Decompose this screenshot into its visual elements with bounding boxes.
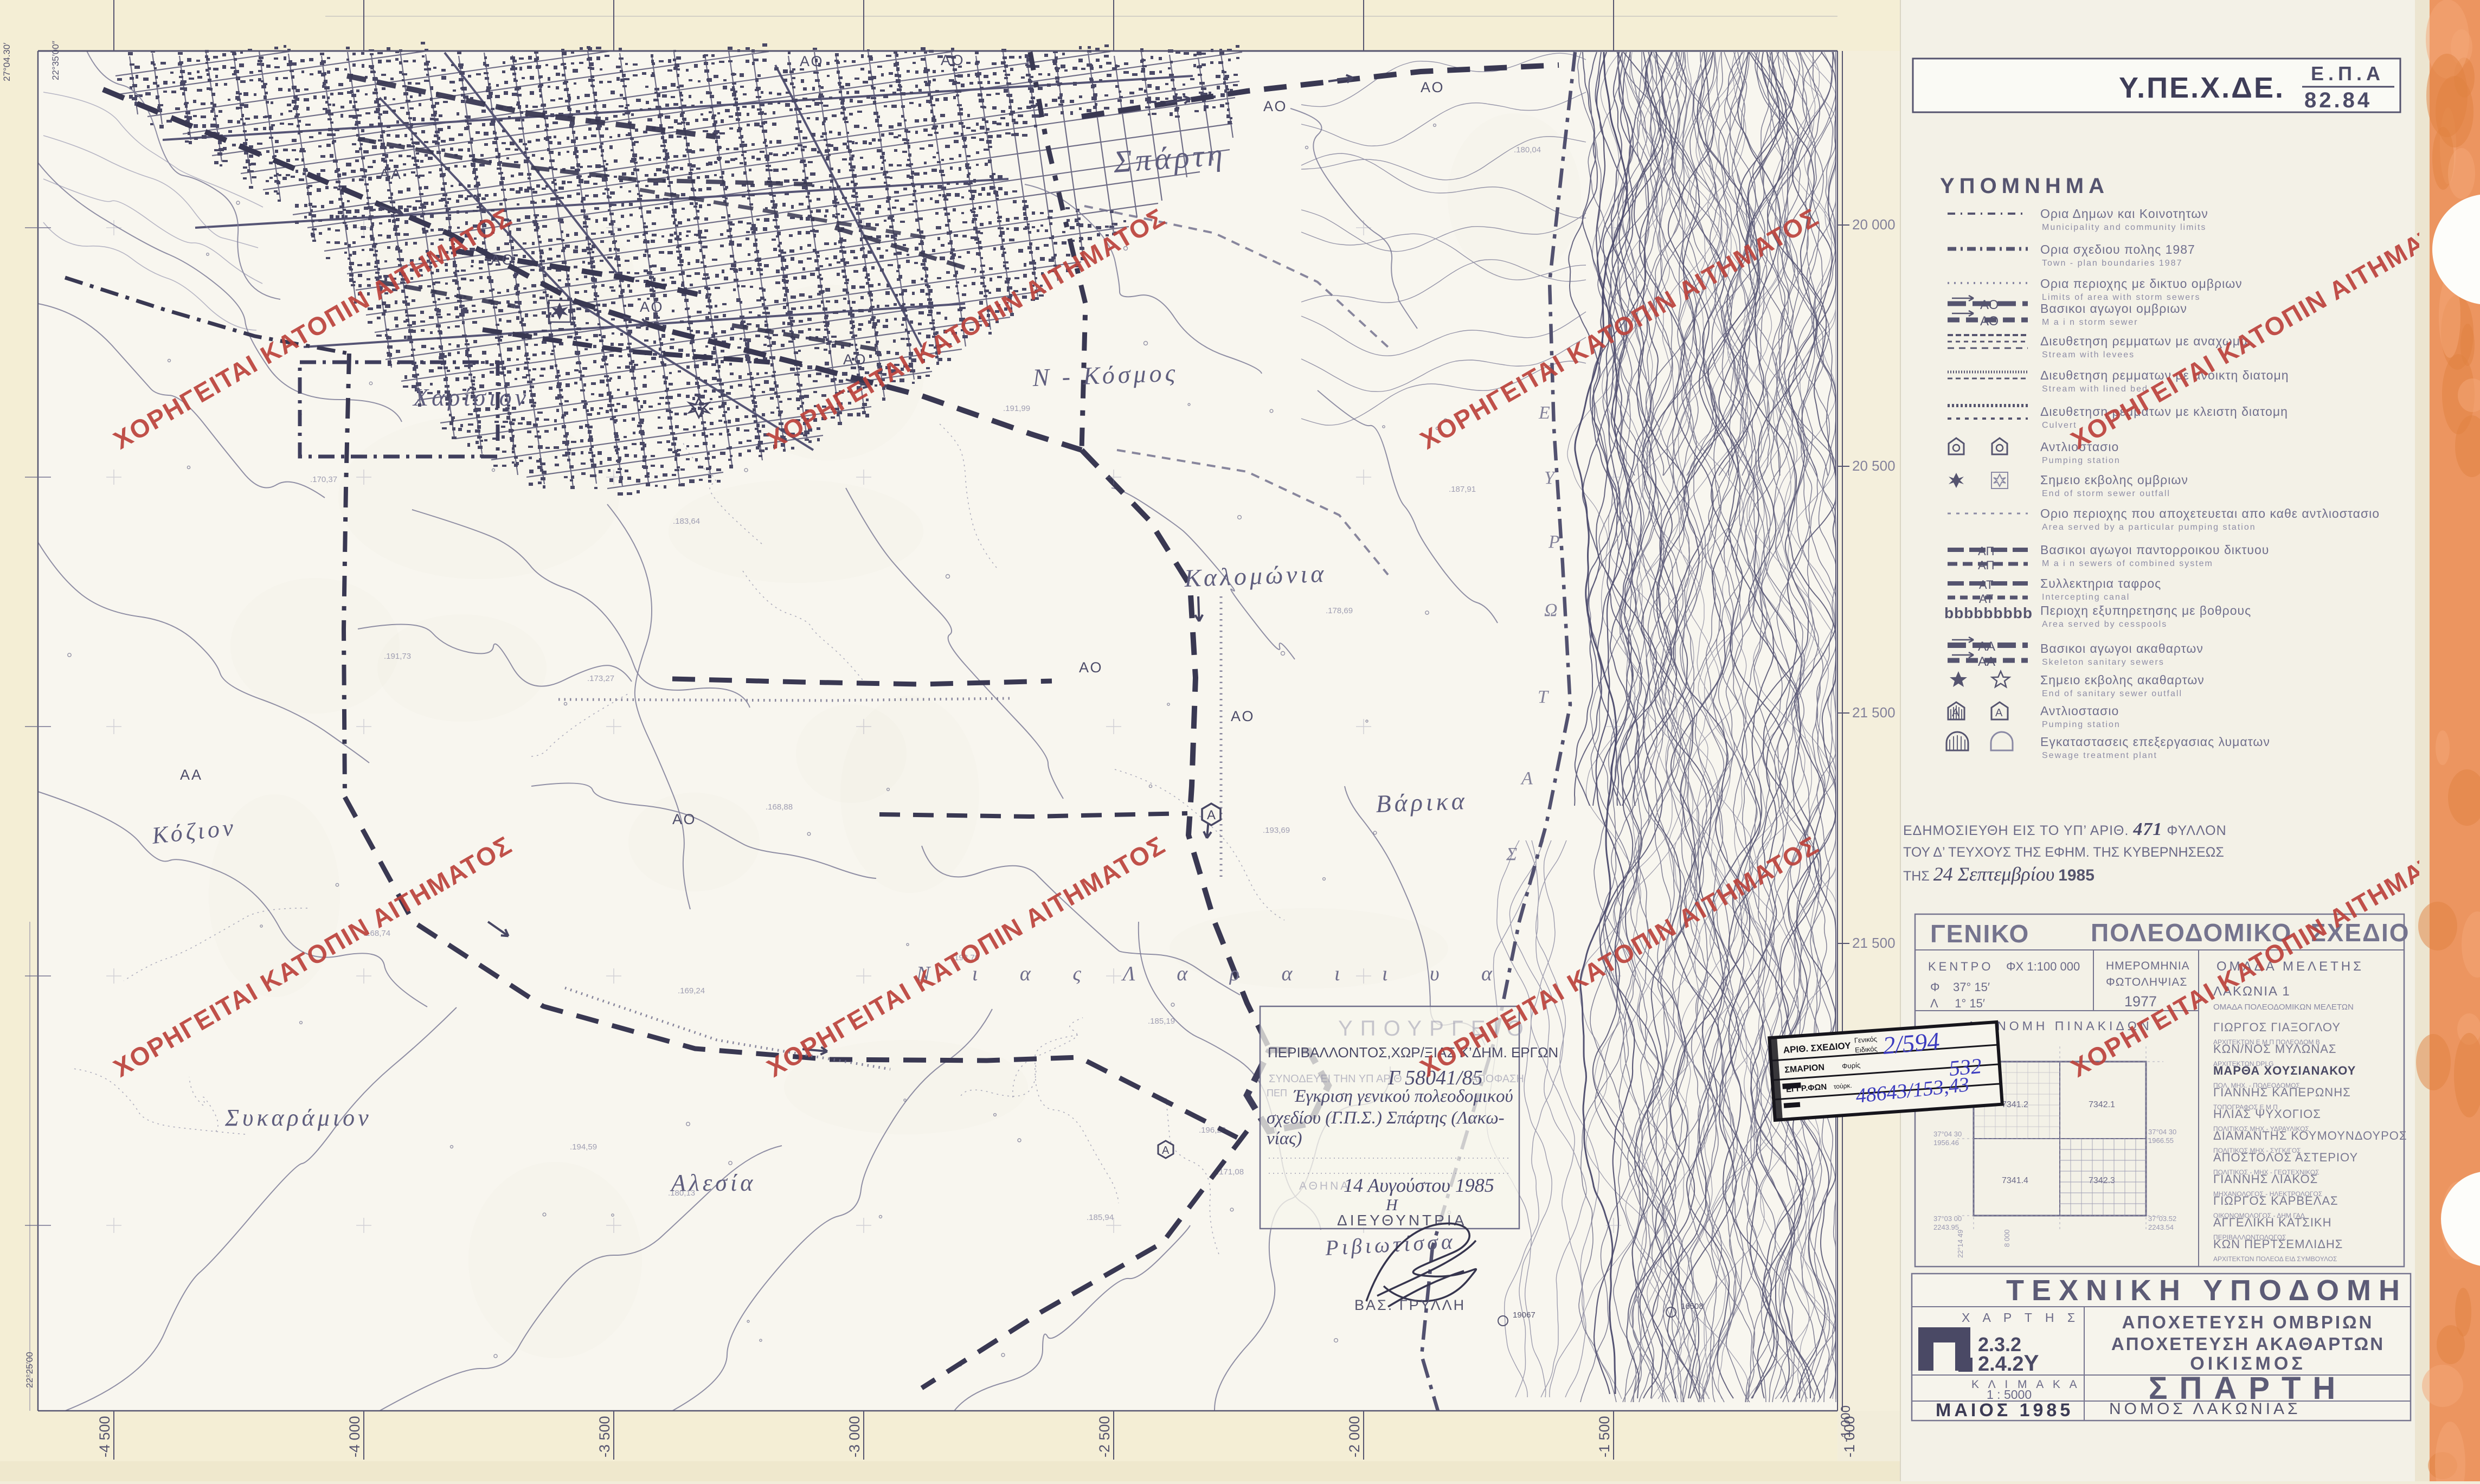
svg-text:bbbbbbbbb: bbbbbbbbb: [1944, 605, 2033, 621]
svg-text:Stream with levees: Stream with levees: [2042, 350, 2135, 359]
svg-text:Φ 37° 15′: Φ 37° 15′: [1930, 980, 1990, 994]
svg-text:σχεδίου (Γ.Π.Σ.) Σπάρτης (Λακω: σχεδίου (Γ.Π.Σ.) Σπάρτης (Λακω-: [1267, 1108, 1505, 1128]
svg-text:ΗΛΙΑΣ ΨΥΧΟΓΙΟΣ: ΗΛΙΑΣ ΨΥΧΟΓΙΟΣ: [2213, 1107, 2321, 1121]
svg-text:Skeleton sanitary sewers: Skeleton sanitary sewers: [2042, 658, 2164, 667]
svg-text:Σ: Σ: [1506, 844, 1517, 864]
svg-text:16508: 16508: [1681, 1302, 1704, 1311]
svg-text:ΑΠΟΣΤΟΛΟΣ ΑΣΤΕΡΙΟΥ: ΑΠΟΣΤΟΛΟΣ ΑΣΤΕΡΙΟΥ: [2213, 1151, 2358, 1164]
svg-text:ΑΟ: ΑΟ: [1980, 314, 1999, 329]
svg-text:ΑΠΟΧΕΤΕΥΣΗ ΑΚΑΘΑΡΤΩΝ: ΑΠΟΧΕΤΕΥΣΗ ΑΚΑΘΑΡΤΩΝ: [2111, 1334, 2385, 1354]
svg-text:Ν ι α ς Λ α ρ α ι ι υ α: Ν ι α ς Λ α ρ α ι ι υ α: [916, 962, 1511, 985]
svg-text:ΑΟ: ΑΟ: [640, 299, 664, 315]
svg-text:.178,69: .178,69: [1326, 606, 1353, 615]
svg-text:37°04 30: 37°04 30: [2148, 1128, 2176, 1136]
svg-text:A: A: [1952, 707, 1959, 719]
svg-text:M a i n storm sewer: M a i n storm sewer: [2042, 318, 2138, 327]
svg-text:ΔΙΕΥΘΥΝΤΡΙΑ: ΔΙΕΥΘΥΝΤΡΙΑ: [1337, 1212, 1467, 1229]
svg-text:Βάρικα: Βάρικα: [1376, 787, 1468, 818]
svg-text:.193,69: .193,69: [1263, 826, 1290, 835]
svg-text:ΓΙΩΡΓΟΣ ΚΑΡΒΕΛΑΣ: ΓΙΩΡΓΟΣ ΚΑΡΒΕΛΑΣ: [2213, 1194, 2338, 1207]
svg-text:.185,19: .185,19: [1148, 1017, 1175, 1026]
svg-text:Χ Α Ρ Τ Η Σ: Χ Α Ρ Τ Η Σ: [1962, 1310, 2080, 1325]
svg-text:7342.1: 7342.1: [2089, 1100, 2115, 1109]
svg-text:-1 500: -1 500: [1596, 1416, 1612, 1457]
svg-text:.180,04: .180,04: [1514, 145, 1541, 155]
svg-text:ΠΕΡΙΒΑΛΛΟΝΤΟΣ,ΧΩΡ/ΞΙΑΣ Κ’ΔΗΜ.: ΠΕΡΙΒΑΛΛΟΝΤΟΣ,ΧΩΡ/ΞΙΑΣ Κ’ΔΗΜ. ΕΡΓΩΝ: [1268, 1044, 1558, 1061]
svg-text:82.84: 82.84: [2304, 88, 2372, 112]
svg-text:.173,27: .173,27: [587, 674, 614, 683]
svg-text:.191,99: .191,99: [1003, 404, 1030, 413]
svg-text:Βασικοι αγωγοι παντορροικου: Βασικοι αγωγοι παντορροικου δικτυου: [2040, 543, 2269, 557]
svg-text:ΗΜΕΡΟΜΗΝΙΑ: ΗΜΕΡΟΜΗΝΙΑ: [2106, 960, 2190, 972]
svg-text:ΑΤ: ΑΤ: [1979, 592, 1993, 606]
svg-text:ΜΑΡΘΑ ΧΟΥΣΙΑΝΑΚΟΥ: ΜΑΡΘΑ ΧΟΥΣΙΑΝΑΚΟΥ: [2213, 1064, 2356, 1077]
svg-text:-3 000: -3 000: [846, 1416, 863, 1457]
svg-text:Συλλεκτηρια ταφρος: Συλλεκτηρια ταφρος: [2040, 576, 2161, 590]
svg-text:ΠΟΛΕΟΔΟΜΙΚΟ: ΠΟΛΕΟΔΟΜΙΚΟ: [2091, 918, 2292, 947]
svg-text:Ρ: Ρ: [1548, 532, 1560, 552]
svg-text:1977: 1977: [2124, 993, 2157, 1010]
svg-text:End of sanitary sewer outf: End of sanitary sewer outfall: [2042, 689, 2182, 698]
svg-text:Φυρίς: Φυρίς: [1842, 1061, 1861, 1070]
svg-text:-2 500: -2 500: [1096, 1416, 1113, 1457]
svg-text:19067: 19067: [1513, 1310, 1535, 1320]
svg-text:-3 500: -3 500: [596, 1416, 613, 1457]
svg-text:ΑΘΗΝΑ: ΑΘΗΝΑ: [1299, 1180, 1350, 1192]
svg-text:Town - plan boundaries 1987: Town - plan boundaries 1987: [2042, 259, 2182, 268]
svg-text:Βασικοι αγωγοι ομβριων: Βασικοι αγωγοι ομβριων: [2040, 301, 2187, 316]
svg-text:.170,37: .170,37: [310, 475, 337, 484]
svg-text:ΑΟ: ΑΟ: [843, 351, 867, 368]
svg-text:ΑΟ: ΑΟ: [672, 811, 696, 827]
svg-text:ΝΟΜΟΣ ΛΑΚΩΝΙΑΣ: ΝΟΜΟΣ ΛΑΚΩΝΙΑΣ: [2109, 1400, 2301, 1418]
svg-text:Area served by cesspools: Area served by cesspools: [2042, 620, 2167, 629]
svg-text:A: A: [1162, 1145, 1170, 1157]
svg-text:ΤΕΧΝΙΚΗ ΥΠΟΔΟΜΗ: ΤΕΧΝΙΚΗ ΥΠΟΔΟΜΗ: [2006, 1274, 2407, 1307]
svg-text:ΤΟΥ Δ’ ΤΕΥΧΟΥΣ ΤΗΣ ΕΦΗΜ. ΤΗΣ Κ: ΤΟΥ Δ’ ΤΕΥΧΟΥΣ ΤΗΣ ΕΦΗΜ. ΤΗΣ ΚΥΒΕΡΝΗΣΕΩΣ: [1903, 845, 2224, 860]
svg-text:Γενικός: Γενικός: [1854, 1035, 1877, 1044]
svg-text:ΑΠΟΦΑΣΗ: ΑΠΟΦΑΣΗ: [1470, 1073, 1524, 1085]
svg-text:ΑΟ: ΑΟ: [1421, 79, 1444, 95]
svg-text:37°03 00: 37°03 00: [1933, 1215, 1962, 1223]
svg-text:.191,73: .191,73: [384, 652, 411, 661]
svg-text:ΥΠΟΜΝΗΜΑ: ΥΠΟΜΝΗΜΑ: [1940, 174, 2109, 198]
svg-text:ΣΥΝΟΔΕΥΕΙ ΤΗΝ ΥΠ ΑΡΙΘ: ΣΥΝΟΔΕΥΕΙ ΤΗΝ ΥΠ ΑΡΙΘ: [1269, 1073, 1402, 1085]
svg-text:ΜΑΙΟΣ 1985: ΜΑΙΟΣ 1985: [1936, 1400, 2073, 1421]
svg-text:ΑΠ: ΑΠ: [1978, 544, 1995, 558]
svg-text:ΑΑ: ΑΑ: [380, 166, 402, 182]
svg-text:Pumping station: Pumping station: [2042, 720, 2121, 729]
svg-text:ΑΟ: ΑΟ: [1980, 298, 1999, 312]
svg-text:2.4.2Υ: 2.4.2Υ: [1978, 1350, 2039, 1376]
svg-text:ΔΙΑΜΑΝΤΗΣ ΚΟΥΜΟΥΝΔΟΥΡΟΣ: ΔΙΑΜΑΝΤΗΣ ΚΟΥΜΟΥΝΔΟΥΡΟΣ: [2213, 1129, 2407, 1142]
svg-text:Ν - Κόσμος: Ν - Κόσμος: [1032, 359, 1179, 391]
svg-text:Υ.ΠΕ.Χ.ΔΕ.: Υ.ΠΕ.Χ.ΔΕ.: [2119, 72, 2285, 104]
svg-text:ΓΙΩΡΓΟΣ ΓΙΑΞΟΓΛΟΥ: ΓΙΩΡΓΟΣ ΓΙΑΞΟΓΛΟΥ: [2213, 1020, 2341, 1034]
svg-text:ΓΙΑΝΝΗΣ ΛΙΑΚΟΣ: ΓΙΑΝΝΗΣ ΛΙΑΚΟΣ: [2213, 1172, 2318, 1186]
svg-text:ΒΑΣ. ΓΡΥΛΛΗ: ΒΑΣ. ΓΡΥΛΛΗ: [1354, 1297, 1466, 1313]
svg-text:Καλομώνια: Καλομώνια: [1184, 560, 1328, 592]
svg-text:ΑΡΧΙΤΕΚΤΩΝ ΠΟΛΕΟΔ ΕΙΔ ΣΥΜΒΟ: ΑΡΧΙΤΕΚΤΩΝ ΠΟΛΕΟΔ ΕΙΔ ΣΥΜΒΟΥΛΟΣ: [2213, 1255, 2337, 1263]
svg-text:Αλεσία: Αλεσία: [670, 1170, 756, 1196]
svg-text:2243.95: 2243.95: [1933, 1223, 1959, 1231]
svg-text:Περιοχη εξυπηρετησης με βοθ: Περιοχη εξυπηρετησης με βοθρους: [2040, 603, 2251, 618]
svg-text:.194,59: .194,59: [570, 1142, 597, 1152]
svg-text:ΚΩΝ/ΝΟΣ ΜΥΛΩΝΑΣ: ΚΩΝ/ΝΟΣ ΜΥΛΩΝΑΣ: [2213, 1042, 2337, 1056]
svg-text:Σημειο εκβολης ακαθαρτων: Σημειο εκβολης ακαθαρτων: [2040, 673, 2205, 687]
svg-text:Έγκριση γενικού πολεοδομικού: Έγκριση γενικού πολεοδομικού: [1293, 1087, 1513, 1106]
svg-text:37°03.52: 37°03.52: [2148, 1215, 2176, 1223]
svg-text:Εγκαταστασεις επεξεργασιας λ: Εγκαταστασεις επεξεργασιας λυματων: [2040, 735, 2270, 749]
svg-text:22°14 49: 22°14 49: [1956, 1230, 1964, 1258]
svg-text:ΓΙΑΝΝΗΣ ΚΑΠΕΡΩΝΗΣ: ΓΙΑΝΝΗΣ ΚΑΠΕΡΩΝΗΣ: [2213, 1085, 2351, 1099]
svg-text:20 500: 20 500: [1852, 458, 1896, 474]
svg-text:Υ: Υ: [1544, 468, 1556, 488]
svg-text:Ορια Δημων και Κοινοτητων: Ορια Δημων και Κοινοτητων: [2040, 207, 2208, 221]
svg-text:Municipality and community: Municipality and community limits: [2042, 223, 2206, 232]
svg-text:Ε: Ε: [1538, 403, 1550, 423]
svg-text:Ειδικός: Ειδικός: [1855, 1044, 1878, 1054]
svg-text:-1 000: -1 000: [1839, 1405, 1853, 1442]
svg-text:Ορια σχεδιου πολης 1987: Ορια σχεδιου πολης 1987: [2040, 242, 2195, 256]
svg-text:27°04.30′: 27°04.30′: [2, 43, 12, 81]
svg-text:ΑΑ: ΑΑ: [180, 767, 203, 783]
svg-text:ΑΑ: ΑΑ: [1978, 654, 1995, 669]
svg-text:-2 000: -2 000: [1346, 1416, 1363, 1457]
svg-text:Τ: Τ: [1538, 687, 1549, 707]
svg-text:ΠΕΠ: ΠΕΠ: [1267, 1088, 1287, 1098]
svg-text:A: A: [1995, 707, 2003, 719]
svg-text:.185,94: .185,94: [1087, 1213, 1114, 1222]
svg-text:.168,88: .168,88: [766, 802, 793, 812]
svg-text:7341.2: 7341.2: [2002, 1100, 2028, 1109]
svg-text:ΑΟ: ΑΟ: [1079, 659, 1103, 676]
svg-text:Α: Α: [1520, 768, 1533, 788]
svg-text:2243.54: 2243.54: [2148, 1223, 2174, 1231]
svg-text:ΑΟ: ΑΟ: [941, 52, 965, 68]
svg-text:ΑΠΟΧΕΤΕΥΣΗ ΟΜΒΡΙΩΝ: ΑΠΟΧΕΤΕΥΣΗ ΟΜΒΡΙΩΝ: [2122, 1312, 2374, 1332]
svg-text:Ορια περιοχης με δικτυο ομ: Ορια περιοχης με δικτυο ομβριων: [2040, 277, 2243, 291]
svg-text:Σημειο εκβολης ομβριων: Σημειο εκβολης ομβριων: [2040, 473, 2188, 487]
svg-text:ΚΩΝ ΠΕΡΤΣΕΜΛΙΔΗΣ: ΚΩΝ ΠΕΡΤΣΕΜΛΙΔΗΣ: [2213, 1237, 2343, 1251]
svg-text:Limits of area with storm: Limits of area with storm sewers: [2042, 293, 2201, 302]
svg-text:ΦΧ 1:100 000: ΦΧ 1:100 000: [2006, 960, 2080, 973]
svg-text:Διευθετηση ρεμματων με κλει: Διευθετηση ρεμματων με κλειστη διατομη: [2040, 404, 2288, 419]
svg-text:2.3.2: 2.3.2: [1978, 1333, 2021, 1355]
svg-text:20 000: 20 000: [1852, 216, 1896, 233]
svg-text:Pumping station: Pumping station: [2042, 456, 2121, 465]
svg-text:ΑΤ: ΑΤ: [1979, 578, 1993, 592]
svg-text:-4 000: -4 000: [346, 1416, 363, 1457]
svg-text:ΑΑ: ΑΑ: [1978, 639, 1995, 654]
svg-text:ΓΕΝΙΚΟ: ΓΕΝΙΚΟ: [1930, 920, 2029, 948]
svg-text:ΑΟ: ΑΟ: [1263, 98, 1287, 114]
svg-text:1956.46: 1956.46: [1933, 1139, 1959, 1147]
svg-text:End of storm sewer outfall: End of storm sewer outfall: [2042, 489, 2170, 498]
svg-text:.187,91: .187,91: [1449, 485, 1476, 494]
svg-text:2/594: 2/594: [1881, 1027, 1941, 1059]
svg-text:A: A: [1207, 808, 1216, 823]
svg-text:37°04 30: 37°04 30: [1933, 1130, 1962, 1138]
svg-text:.183,64: .183,64: [673, 517, 700, 526]
svg-text:Αντλιοστασιο: Αντλιοστασιο: [2040, 704, 2119, 718]
svg-text:Area served by a particula: Area served by a particular pumping stat…: [2042, 523, 2256, 532]
svg-text:8 000: 8 000: [2003, 1229, 2011, 1247]
svg-text:21 500: 21 500: [1852, 704, 1896, 721]
svg-text:7341.4: 7341.4: [2002, 1176, 2028, 1185]
svg-text:-4 500: -4 500: [97, 1416, 113, 1457]
svg-text:ΚΕΝΤΡΟ: ΚΕΝΤΡΟ: [1928, 960, 1993, 973]
svg-text:ΦΩΤΟΛΗΨΙΑΣ: ΦΩΤΟΛΗΨΙΑΣ: [2106, 976, 2187, 988]
svg-text:τούρκ.: τούρκ.: [1833, 1082, 1852, 1090]
svg-text:22°35′00″: 22°35′00″: [50, 41, 61, 80]
svg-text:ΑΟ: ΑΟ: [1231, 708, 1255, 724]
svg-text:Βασικοι αγωγοι ακαθαρτων: Βασικοι αγωγοι ακαθαρτων: [2040, 641, 2203, 656]
svg-text:Χαρίσιον: Χαρίσιον: [412, 383, 529, 411]
svg-text:Ε.Π.Α: Ε.Π.Α: [2311, 62, 2385, 85]
svg-text:ΑΟ: ΑΟ: [800, 53, 824, 69]
svg-text:21 500: 21 500: [1852, 935, 1896, 951]
svg-text:14 Αυγούστου 1985: 14 Αυγούστου 1985: [1344, 1174, 1494, 1196]
svg-text:Intercepting canal: Intercepting canal: [2042, 593, 2130, 602]
svg-text:1966.55: 1966.55: [2148, 1136, 2174, 1145]
svg-text:M a i n sewers of combi: M a i n sewers of combined system: [2042, 559, 2213, 568]
svg-text:Λ 1° 15′: Λ 1° 15′: [1930, 997, 1985, 1010]
svg-text:.169,24: .169,24: [678, 986, 705, 995]
svg-text:ΑΟ: ΑΟ: [491, 252, 515, 268]
svg-text:ΑΠ: ΑΠ: [1978, 558, 1995, 572]
svg-text:Sewage treatment plant: Sewage treatment plant: [2042, 751, 2157, 760]
svg-text:Ω: Ω: [1544, 600, 1558, 620]
svg-text:Οριο περιοχης που αποχετευε: Οριο περιοχης που αποχετευεται απο καθε …: [2040, 506, 2380, 521]
svg-text:22°25′00: 22°25′00: [24, 1352, 35, 1388]
svg-text:ΑΓΓΕΛΙΚΗ ΚΑΤΣΙΚΗ: ΑΓΓΕΛΙΚΗ ΚΑΤΣΙΚΗ: [2213, 1216, 2332, 1229]
svg-text:νίας): νίας): [1267, 1129, 1302, 1148]
svg-text:ΟΜΑΔΑ ΠΟΛΕΟΔΟΜΙΚΩΝ ΜΕΛΕΤΩΝ: ΟΜΑΔΑ ΠΟΛΕΟΔΟΜΙΚΩΝ ΜΕΛΕΤΩΝ: [2213, 1003, 2354, 1012]
svg-text:Συκαράμιον: Συκαράμιον: [224, 1104, 372, 1131]
